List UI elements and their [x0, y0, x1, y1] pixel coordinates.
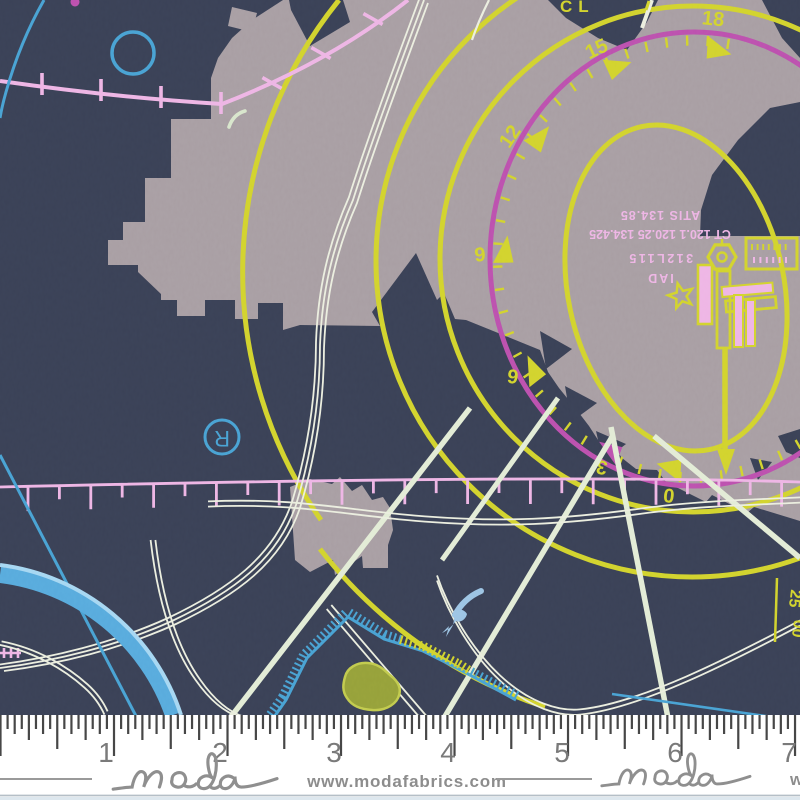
svg-text:1: 1 [98, 737, 114, 768]
svg-text:www: www [789, 770, 800, 789]
svg-text:3: 3 [326, 737, 342, 768]
svg-text:2: 2 [212, 737, 228, 768]
svg-text:4: 4 [440, 737, 456, 768]
svg-text:5: 5 [554, 737, 570, 768]
svg-text:6: 6 [667, 737, 683, 768]
svg-text:www.modafabrics.com: www.modafabrics.com [306, 772, 507, 791]
svg-text:7: 7 [781, 737, 797, 768]
